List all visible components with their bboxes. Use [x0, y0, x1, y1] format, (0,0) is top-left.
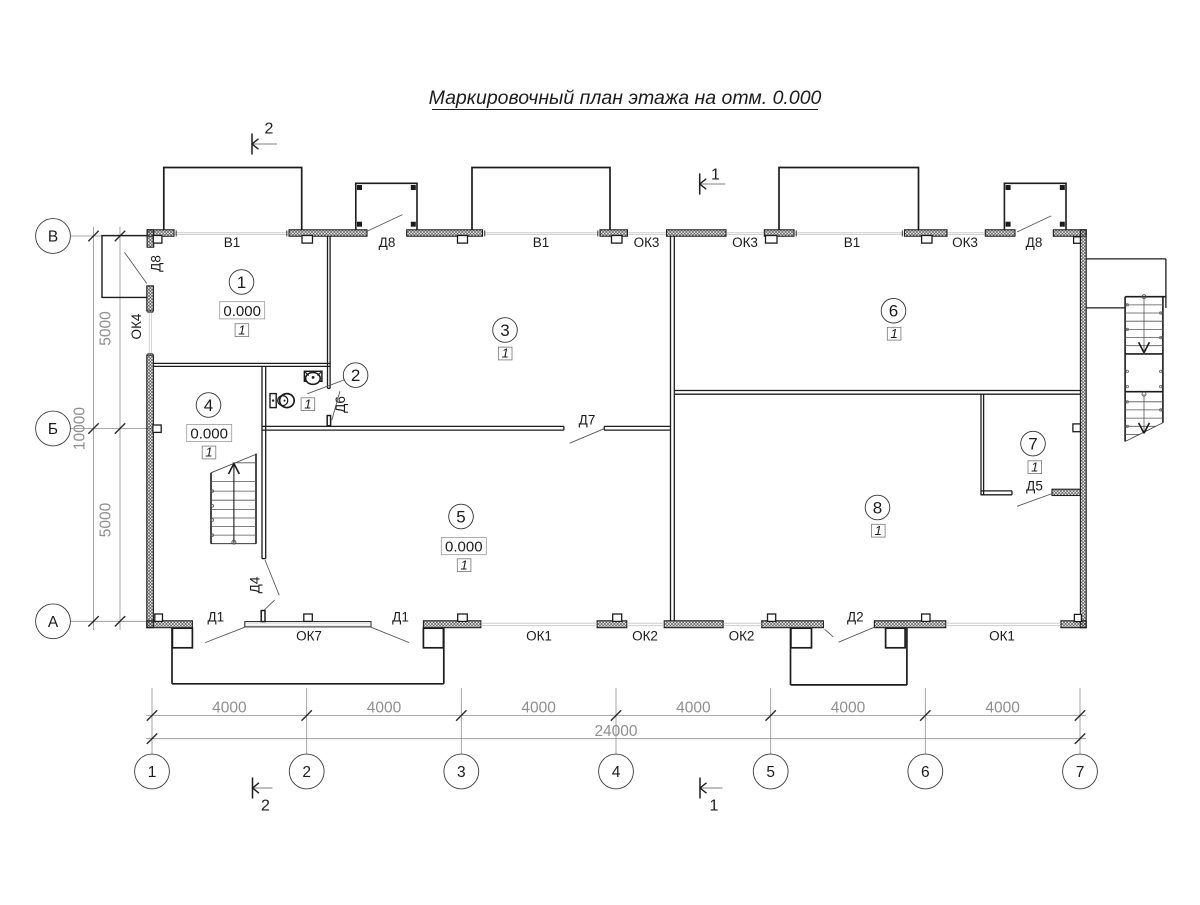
svg-text:1: 1 — [502, 346, 509, 361]
svg-text:5: 5 — [766, 764, 775, 781]
svg-text:6: 6 — [921, 764, 930, 781]
svg-text:Д4: Д4 — [248, 576, 263, 593]
svg-text:4000: 4000 — [831, 700, 866, 717]
svg-text:Д8: Д8 — [379, 235, 396, 250]
svg-text:2: 2 — [261, 798, 270, 815]
svg-text:В1: В1 — [844, 235, 861, 250]
svg-text:1: 1 — [710, 798, 719, 815]
svg-text:4000: 4000 — [676, 700, 711, 717]
svg-text:1: 1 — [237, 273, 246, 292]
svg-text:ОК7: ОК7 — [296, 629, 322, 644]
svg-text:2: 2 — [265, 121, 274, 138]
svg-text:Д1: Д1 — [392, 610, 409, 625]
svg-text:7: 7 — [1076, 764, 1085, 781]
svg-text:1: 1 — [304, 396, 311, 411]
svg-text:1: 1 — [1031, 459, 1038, 474]
svg-text:В: В — [48, 229, 58, 246]
svg-text:ОК3: ОК3 — [634, 235, 660, 250]
svg-text:1: 1 — [890, 326, 897, 341]
svg-text:3: 3 — [457, 764, 466, 781]
svg-text:ОК3: ОК3 — [952, 235, 978, 250]
svg-text:Д8: Д8 — [1026, 235, 1043, 250]
svg-text:Д5: Д5 — [1026, 479, 1043, 494]
svg-text:А: А — [48, 614, 59, 631]
svg-text:0.000: 0.000 — [223, 303, 261, 320]
svg-text:Б: Б — [48, 421, 58, 438]
svg-text:1: 1 — [148, 764, 157, 781]
svg-text:2: 2 — [302, 764, 311, 781]
svg-text:ОК1: ОК1 — [526, 629, 552, 644]
svg-text:24000: 24000 — [594, 723, 637, 740]
svg-text:Д2: Д2 — [847, 610, 864, 625]
svg-text:1: 1 — [711, 167, 720, 184]
svg-text:6: 6 — [889, 302, 898, 321]
svg-text:1: 1 — [238, 322, 245, 337]
svg-text:0.000: 0.000 — [445, 539, 483, 556]
svg-text:Д8: Д8 — [149, 255, 164, 272]
svg-text:В1: В1 — [224, 235, 241, 250]
svg-text:4000: 4000 — [367, 700, 402, 717]
svg-text:1: 1 — [460, 557, 467, 572]
svg-text:Маркировочный план этажа на от: Маркировочный план этажа на отм. 0.000 — [429, 87, 822, 109]
svg-text:3: 3 — [500, 321, 509, 340]
svg-text:ОК1: ОК1 — [989, 629, 1015, 644]
svg-text:4000: 4000 — [985, 700, 1020, 717]
svg-text:ОК4: ОК4 — [129, 313, 144, 339]
svg-text:В1: В1 — [533, 235, 550, 250]
svg-text:4000: 4000 — [521, 700, 556, 717]
svg-text:0.000: 0.000 — [190, 426, 228, 443]
svg-text:10000: 10000 — [72, 407, 89, 450]
svg-text:5000: 5000 — [98, 311, 115, 346]
svg-text:1: 1 — [875, 523, 882, 538]
svg-text:ОК2: ОК2 — [632, 629, 658, 644]
svg-text:Д6: Д6 — [333, 396, 348, 413]
svg-text:5000: 5000 — [98, 502, 115, 537]
svg-text:Д7: Д7 — [579, 413, 596, 428]
svg-text:2: 2 — [351, 366, 360, 385]
svg-text:Д1: Д1 — [207, 610, 224, 625]
svg-text:5: 5 — [456, 508, 465, 527]
svg-text:4: 4 — [612, 764, 621, 781]
svg-text:1: 1 — [205, 445, 212, 460]
svg-text:ОК3: ОК3 — [732, 235, 758, 250]
svg-text:4000: 4000 — [212, 700, 247, 717]
svg-text:ОК2: ОК2 — [729, 629, 755, 644]
svg-text:4: 4 — [204, 396, 213, 415]
svg-text:7: 7 — [1028, 435, 1037, 454]
svg-text:8: 8 — [873, 499, 882, 518]
